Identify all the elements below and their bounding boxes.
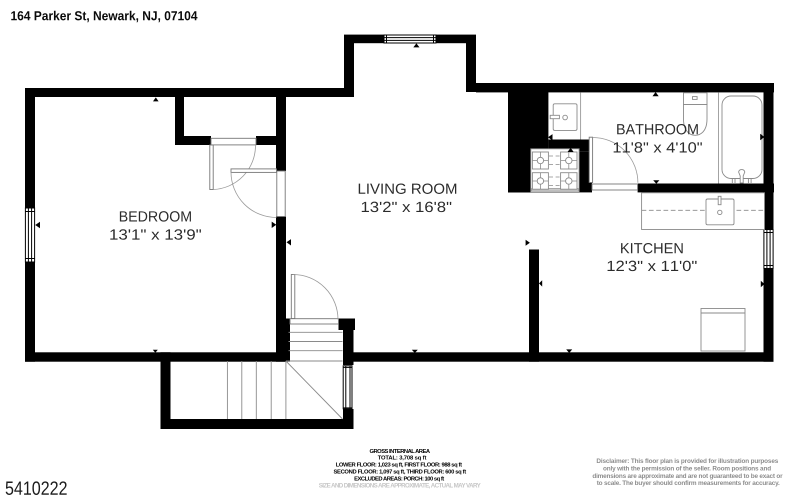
svg-text:only with the permission of th: only with the permission of the seller. …	[603, 465, 771, 472]
svg-text:SECOND FLOOR: 1,097 sq ft, THI: SECOND FLOOR: 1,097 sq ft, THIRD FLOOR: …	[334, 470, 467, 476]
svg-text:Disclaimer: This floor plan is: Disclaimer: This floor plan is provided …	[596, 458, 778, 465]
svg-text:dimensions are approximate and: dimensions are approximate and are not g…	[592, 473, 783, 480]
svg-text:TOTAL: 3,708 sq ft: TOTAL: 3,708 sq ft	[378, 456, 427, 462]
svg-text:to scale. The buyer should con: to scale. The buyer should confirm measu…	[597, 480, 780, 487]
svg-text:SIZE AND DIMENSIONS ARE APPROX: SIZE AND DIMENSIONS ARE APPROXIMATE, ACT…	[319, 483, 482, 490]
svg-text:GROSS INTERNAL AREA: GROSS INTERNAL AREA	[370, 449, 431, 455]
svg-text:LOWER FLOOR: 1,023 sq ft, FIRS: LOWER FLOOR: 1,023 sq ft, FIRST FLOOR: 9…	[336, 463, 462, 469]
svg-text:EXCLUDED AREAS: PORCH: 100 sq: EXCLUDED AREAS: PORCH: 100 sq ft	[354, 476, 444, 482]
